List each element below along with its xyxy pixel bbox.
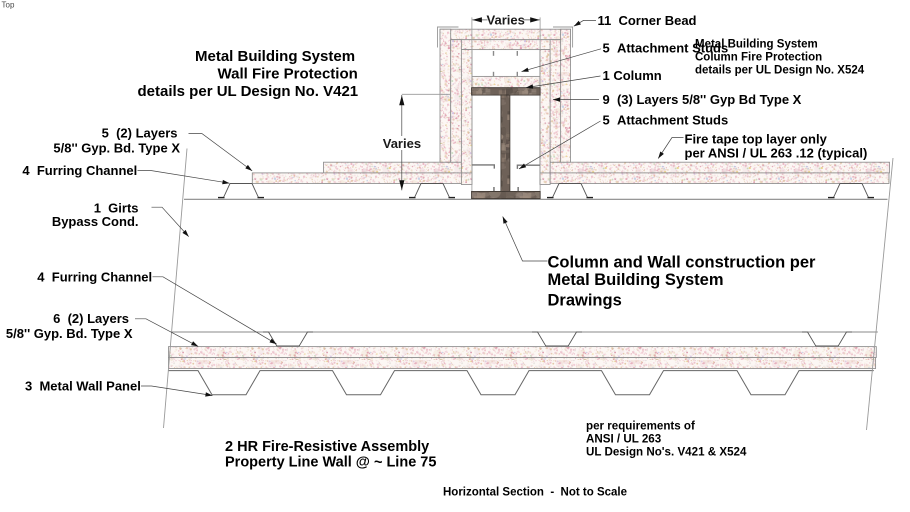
svg-text:details per UL Design No. V421: details per UL Design No. V421 [138, 83, 359, 100]
svg-text:9 (3) Layers 5/8'' Gyp Bd Typ: 9 (3) Layers 5/8'' Gyp Bd Type X [603, 92, 802, 107]
svg-text:6 (2) Layers: 6 (2) Layers [53, 311, 129, 326]
svg-text:Wall Fire Protection: Wall Fire Protection [218, 66, 358, 83]
svg-text:per requirements of: per requirements of [586, 420, 695, 433]
svg-text:ANSI / UL 263: ANSI / UL 263 [586, 433, 662, 446]
svg-text:per ANSI / UL 263 .12 (typical: per ANSI / UL 263 .12 (typical) [685, 145, 868, 160]
svg-text:Metal Building System: Metal Building System [548, 271, 724, 289]
svg-text:5 Attachment Studs: 5 Attachment Studs [603, 113, 729, 128]
svg-text:Bypass Cond.: Bypass Cond. [52, 214, 139, 229]
svg-text:Metal Building System: Metal Building System [695, 39, 818, 51]
svg-text:2 HR Fire-Resistive Assembly: 2 HR Fire-Resistive Assembly [225, 439, 429, 455]
svg-text:11 Corner Bead: 11 Corner Bead [598, 13, 697, 28]
svg-text:Column Fire Protection: Column Fire Protection [695, 52, 822, 64]
svg-text:Top: Top [2, 1, 15, 10]
svg-text:UL Design No's. V421 & X524: UL Design No's. V421 & X524 [586, 446, 747, 459]
svg-text:1 Column: 1 Column [603, 68, 662, 83]
svg-text:3 Metal Wall Panel: 3 Metal Wall Panel [25, 378, 141, 393]
svg-text:5/8'' Gyp. Bd. Type X: 5/8'' Gyp. Bd. Type X [53, 140, 180, 155]
svg-text:5/8'' Gyp. Bd. Type X: 5/8'' Gyp. Bd. Type X [6, 326, 133, 341]
svg-text:5 (2) Layers: 5 (2) Layers [102, 126, 178, 141]
svg-text:Drawings: Drawings [548, 292, 622, 310]
svg-text:4 Furring Channel: 4 Furring Channel [22, 163, 137, 178]
svg-text:Fire tape top layer only: Fire tape top layer only [685, 131, 828, 146]
svg-text:Column and Wall construction p: Column and Wall construction per [548, 254, 817, 272]
svg-text:Varies: Varies [383, 136, 421, 151]
svg-text:Property Line Wall @ ~ Line 75: Property Line Wall @ ~ Line 75 [225, 455, 436, 471]
svg-text:details per UL Design No. X524: details per UL Design No. X524 [695, 65, 865, 77]
svg-text:Metal Building System: Metal Building System [195, 48, 355, 65]
svg-text:4 Furring Channel: 4 Furring Channel [37, 269, 152, 284]
svg-text:Varies: Varies [487, 13, 525, 28]
svg-text:Horizontal Section - Not to: Horizontal Section - Not to Scale [443, 486, 627, 498]
